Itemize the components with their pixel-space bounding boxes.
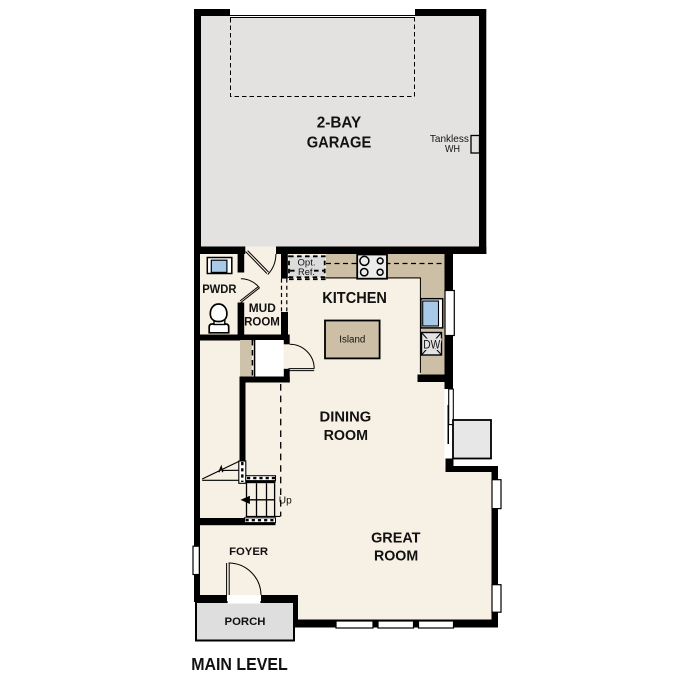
svg-text:MUD: MUD bbox=[249, 301, 276, 315]
svg-text:2-BAY: 2-BAY bbox=[317, 115, 362, 132]
svg-text:PORCH: PORCH bbox=[225, 616, 266, 628]
svg-text:PWDR: PWDR bbox=[202, 284, 237, 296]
svg-text:ROOM: ROOM bbox=[374, 548, 418, 565]
svg-text:DW: DW bbox=[423, 340, 440, 352]
svg-text:Island: Island bbox=[339, 335, 365, 346]
svg-text:GREAT: GREAT bbox=[371, 530, 420, 547]
svg-text:WH: WH bbox=[445, 143, 460, 155]
svg-text:DINING: DINING bbox=[320, 409, 372, 425]
svg-text:ROOM: ROOM bbox=[324, 428, 368, 444]
svg-text:GARAGE: GARAGE bbox=[307, 135, 372, 152]
svg-text:ROOM: ROOM bbox=[244, 315, 280, 329]
svg-text:Ref.: Ref. bbox=[298, 267, 315, 278]
svg-text:MAIN LEVEL: MAIN LEVEL bbox=[191, 654, 288, 674]
svg-text:FOYER: FOYER bbox=[229, 546, 268, 558]
svg-text:KITCHEN: KITCHEN bbox=[322, 290, 387, 307]
